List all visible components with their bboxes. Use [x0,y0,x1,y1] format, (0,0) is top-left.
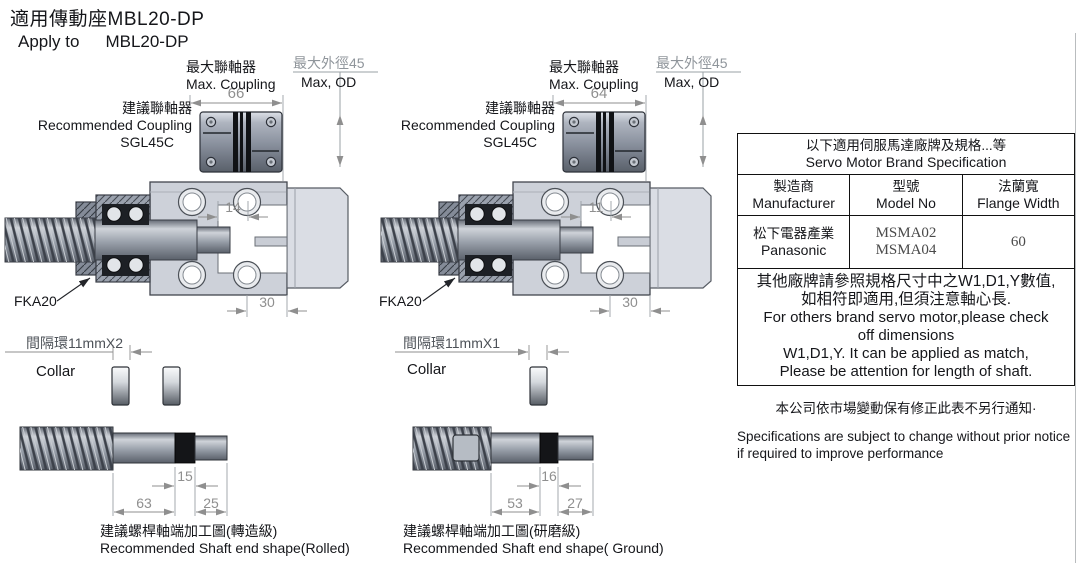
model-no-1: MSMA02 [850,225,961,242]
spacer-label: 間隔環11mmX2 [26,333,123,353]
dim-body: 53 [507,495,523,511]
collar-label: Collar [407,361,446,378]
shaft-caption: 建議螺桿軸端加工圖(研磨級) Recommended Shaft end sha… [403,523,664,557]
max-coupling-zh: 最大聯軸器 [549,59,639,76]
col-model-en: Model No [850,195,961,211]
note-line-4: off dimensions [739,327,1073,345]
shaft-caption-en: Recommended Shaft end shape( Ground) [403,540,664,557]
model-no-2: MSMA04 [850,242,961,259]
page-title-en-model: MBL20-DP [105,32,188,51]
max-coupling-label: 最大聯軸器 Max. Coupling [186,59,276,93]
max-coupling-en: Max. Coupling [549,76,639,93]
dim-end: 25 [203,495,219,511]
note-line-6: Please be attention for length of shaft. [739,363,1073,381]
max-od-en: Max, OD [664,74,719,91]
max-coupling-zh: 最大聯軸器 [186,59,276,76]
support-unit-label: FKA20 [14,293,57,309]
support-unit-drawing [381,182,711,295]
manufacturer-en: Panasonic [738,242,849,258]
collar-drawing [112,367,180,405]
change-notice-en: Specifications are subject to change wit… [737,428,1075,462]
dim-pilot-depth: 30 [259,294,275,310]
dim-shaft-inset: 14 [225,199,241,215]
flange-width-value: 60 [963,234,1074,251]
spec-table: 以下適用伺服馬達廠牌及規格...等 Servo Motor Brand Spec… [737,133,1075,386]
max-coupling-label: 最大聯軸器 Max. Coupling [549,59,639,93]
dim-band: 15 [177,468,193,484]
dim-band: 16 [541,468,557,484]
recommended-coupling-en: Recommended Coupling [363,117,555,134]
col-manufacturer-zh: 製造商 [738,179,849,195]
page-title: 適用傳動座MBL20-DP Apply toMBL20-DP [10,4,204,52]
model-cell: MSMA02 MSMA04 [850,216,962,269]
shaft-caption-zh: 建議螺桿軸端加工圖(轉造級) [100,523,350,540]
max-od-en: Max, OD [301,74,356,91]
support-unit-label: FKA20 [379,293,422,309]
flange-width-cell: 60 [962,216,1074,269]
assembly-drawing-left: 66 [0,55,380,330]
spec-table-title-row: 以下適用伺服馬達廠牌及規格...等 Servo Motor Brand Spec… [738,134,1075,175]
shaft-caption: 建議螺桿軸端加工圖(轉造級) Recommended Shaft end sha… [100,523,350,557]
col-manufacturer-en: Manufacturer [738,195,849,211]
spec-table-title-cell: 以下適用伺服馬達廠牌及規格...等 Servo Motor Brand Spec… [738,134,1075,175]
manufacturer-zh: 松下電器產業 [738,226,849,242]
max-coupling-en: Max. Coupling [186,76,276,93]
note-line-1: 其他廠牌請參照規格尺寸中之W1,D1,Y數值, [739,273,1073,291]
spec-table-title-en: Servo Motor Brand Specification [738,154,1074,170]
col-header-flange: 法蘭寬 Flange Width [962,175,1074,216]
spec-table-header-row: 製造商 Manufacturer 型號 Model No 法蘭寬 Flange … [738,175,1075,216]
recommended-coupling-zh: 建議聯軸器 [363,100,555,117]
shaft-view-rolled: 15 63 25 間隔環11mmX2 Collar 建議螺桿軸端加工圖(轉造級)… [0,330,370,570]
recommended-coupling-model: SGL45C [363,134,555,151]
assembly-drawing-right: 64 [363,55,743,330]
change-notice-en-line1: Specifications are subject to change wit… [737,428,1075,445]
support-unit-drawing [5,182,348,295]
coupling-drawing [563,112,645,172]
note-line-5: W1,D1,Y. It can be applied as match, [739,345,1073,363]
dim-shaft-inset: 11 [589,199,604,215]
keyway-detail [453,435,479,461]
col-header-manufacturer: 製造商 Manufacturer [738,175,850,216]
page-border-right [1075,33,1076,563]
manufacturer-cell: 松下電器產業 Panasonic [738,216,850,269]
spec-table-notes-row: 其他廠牌請參照規格尺寸中之W1,D1,Y數值, 如相符即適用,但須注意軸心長. … [738,269,1075,386]
recommended-coupling-label: 建議聯軸器 Recommended Coupling SGL45C [363,100,555,151]
coupling-drawing [200,112,282,172]
recommended-coupling-label: 建議聯軸器 Recommended Coupling SGL45C [0,100,192,151]
servo-spec-panel: 以下適用伺服馬達廠牌及規格...等 Servo Motor Brand Spec… [737,133,1075,462]
notes-cell: 其他廠牌請參照規格尺寸中之W1,D1,Y數值, 如相符即適用,但須注意軸心長. … [738,269,1075,386]
recommended-coupling-model: SGL45C [0,134,192,151]
spec-table-title-zh: 以下適用伺服馬達廠牌及規格...等 [738,138,1074,154]
assembly-view-right: 64 [363,55,743,330]
shaft-end-drawing [413,427,593,470]
col-model-zh: 型號 [850,179,961,195]
change-notice-zh: 本公司依市場變動保有修正此表不另行通知· [737,397,1075,417]
max-od-zh: 最大外徑45 [293,55,365,72]
page-title-zh: 適用傳動座MBL20-DP [10,4,204,31]
recommended-coupling-zh: 建議聯軸器 [0,100,192,117]
col-header-model: 型號 Model No [850,175,962,216]
page-title-en-prefix: Apply to [18,32,79,51]
note-line-3: For others brand servo motor,please chec… [739,309,1073,327]
note-line-2: 如相符即適用,但須注意軸心長. [739,291,1073,309]
dim-end: 27 [567,495,583,511]
collar-drawing [530,367,547,405]
shaft-caption-zh: 建議螺桿軸端加工圖(研磨級) [403,523,664,540]
page-title-en: Apply toMBL20-DP [18,32,204,52]
assembly-view-left: 66 [0,55,380,330]
col-flange-en: Flange Width [963,195,1074,211]
change-notice-en-line2: if required to improve performance [737,445,1075,462]
collar-label: Collar [36,363,75,380]
shaft-end-drawing [20,427,227,470]
spec-table-data-row: 松下電器產業 Panasonic MSMA02 MSMA04 60 [738,216,1075,269]
spec-sheet-page: { "page": { "title_zh": "適用傳動座MBL20-DP",… [0,0,1081,582]
spacer-label: 間隔環11mmX1 [403,333,500,353]
recommended-coupling-en: Recommended Coupling [0,117,192,134]
dim-body: 63 [136,495,152,511]
dim-pilot-depth: 30 [622,294,638,310]
shaft-view-ground: 16 53 27 間隔環11mmX1 Collar 建議螺桿軸端加工圖(研磨級)… [393,330,723,570]
col-flange-zh: 法蘭寬 [963,179,1074,195]
max-od-zh: 最大外徑45 [656,55,728,72]
shaft-caption-en: Recommended Shaft end shape(Rolled) [100,540,350,557]
